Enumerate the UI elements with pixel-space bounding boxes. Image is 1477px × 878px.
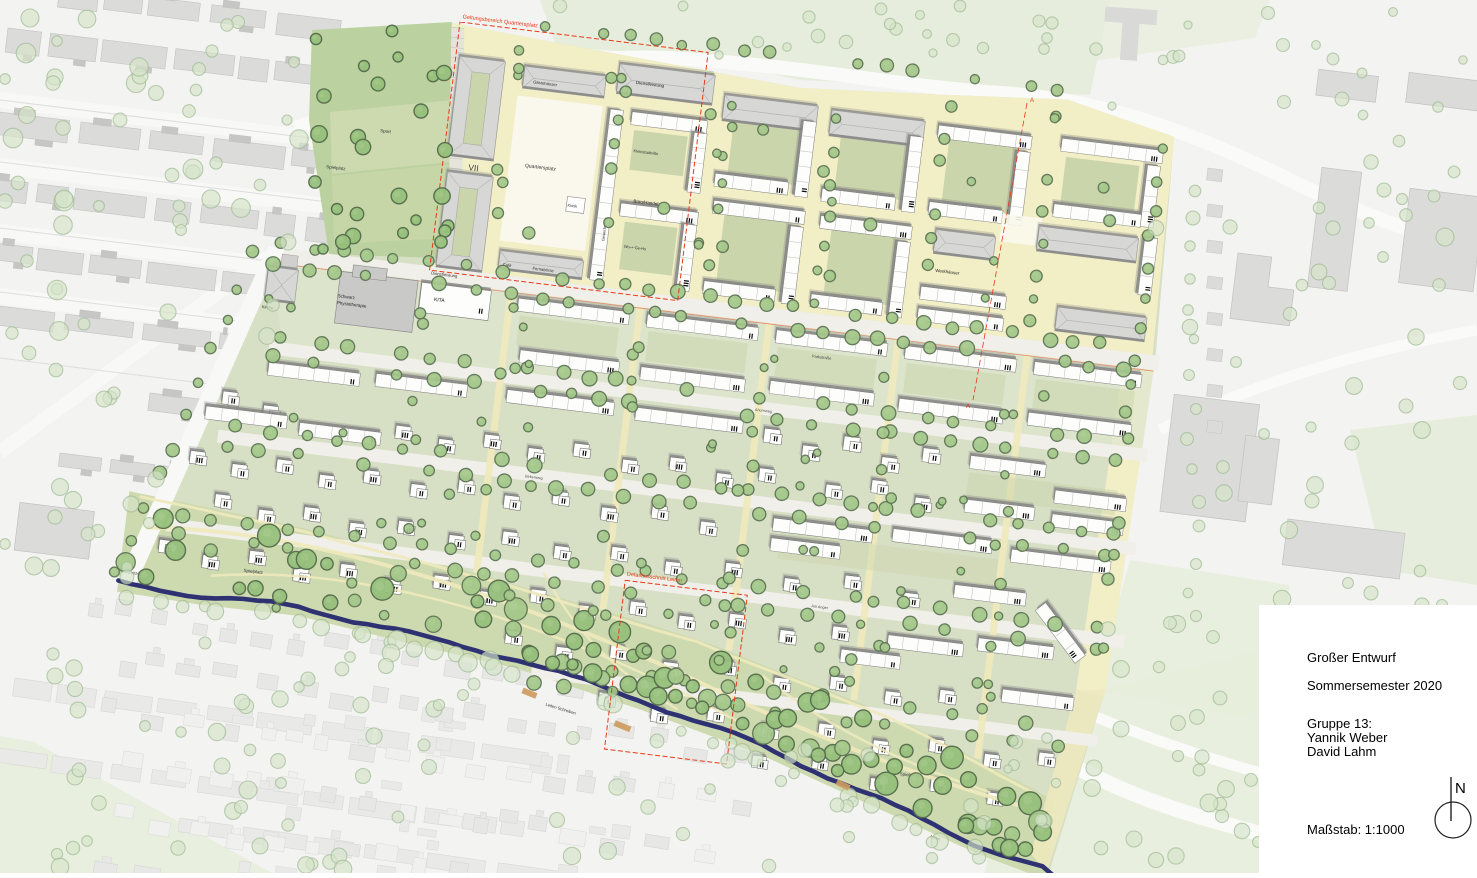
svg-text:David Lahm: David Lahm bbox=[1307, 744, 1376, 759]
svg-text:Großer Entwurf: Großer Entwurf bbox=[1307, 650, 1396, 665]
svg-text:VII: VII bbox=[468, 162, 480, 173]
svg-text:Sommersemester 2020: Sommersemester 2020 bbox=[1307, 678, 1442, 693]
svg-text:Gruppe 13:: Gruppe 13: bbox=[1307, 716, 1372, 731]
svg-text:N: N bbox=[1455, 780, 1466, 797]
svg-text:A: A bbox=[966, 404, 970, 410]
svg-text:A: A bbox=[1030, 98, 1034, 104]
svg-text:Yannik Weber: Yannik Weber bbox=[1307, 730, 1388, 745]
svg-text:Maßstab: 1:1000: Maßstab: 1:1000 bbox=[1307, 822, 1405, 837]
